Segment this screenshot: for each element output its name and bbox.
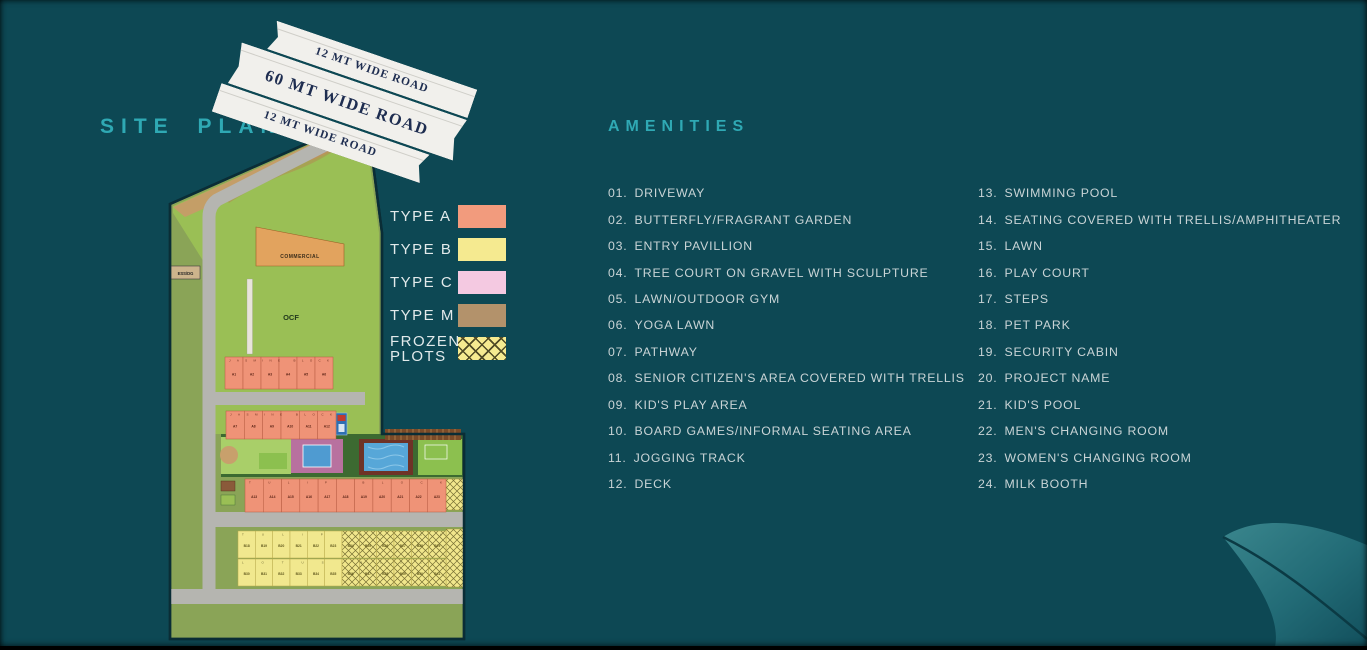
- amenity-label: DECK: [635, 477, 672, 491]
- amenity-item: 10.BOARD GAMES/INFORMAL SEATING AREA: [608, 418, 965, 444]
- amenity-number: 09.: [608, 398, 628, 412]
- amenity-number: 06.: [608, 318, 628, 332]
- amenity-label: SEATING COVERED WITH TRELLIS/AMPHITHEATE…: [1005, 213, 1342, 227]
- plot-label: A15: [288, 495, 294, 499]
- amenity-item: 22.MEN'S CHANGING ROOM: [978, 418, 1341, 444]
- amenity-number: 14.: [978, 213, 998, 227]
- amenity-label: PATHWAY: [635, 345, 698, 359]
- plot-label: A7: [233, 425, 237, 429]
- amenity-number: 18.: [978, 318, 998, 332]
- bottom-border: [0, 646, 1367, 650]
- pet-park-box: [221, 495, 235, 505]
- road-h1: [215, 392, 365, 405]
- plot-label: A23: [434, 495, 440, 499]
- amenity-item: 23.WOMEN'S CHANGING ROOM: [978, 444, 1341, 470]
- amenity-item: 24.MILK BOOTH: [978, 471, 1341, 497]
- amenity-item: 17.STEPS: [978, 286, 1341, 312]
- plot-label: A17: [324, 495, 330, 499]
- plot-label: A1: [232, 373, 236, 377]
- amenity-label: PLAY COURT: [1005, 266, 1090, 280]
- amenity-number: 10.: [608, 424, 628, 438]
- amenity-item: 18.PET PARK: [978, 312, 1341, 338]
- amenity-number: 23.: [978, 451, 998, 465]
- amenity-item: 09.KID'S PLAY AREA: [608, 392, 965, 418]
- amenity-item: 04.TREE COURT ON GRAVEL WITH SCULPTURE: [608, 259, 965, 285]
- amenity-number: 21.: [978, 398, 998, 412]
- plot-label: B30: [244, 572, 250, 576]
- plot-label: A5: [304, 373, 308, 377]
- plot-label: A10: [287, 425, 293, 429]
- amenity-label: BUTTERFLY/FRAGRANT GARDEN: [635, 213, 853, 227]
- amenity-label: WOMEN'S CHANGING ROOM: [1005, 451, 1192, 465]
- plot-label: B24: [348, 544, 354, 548]
- amenity-item: 14.SEATING COVERED WITH TRELLIS/AMPHITHE…: [978, 206, 1341, 232]
- amenity-item: 21.KID'S POOL: [978, 392, 1341, 418]
- amenity-label: KID'S POOL: [1005, 398, 1082, 412]
- plot-label: A9: [270, 425, 274, 429]
- amenity-number: 02.: [608, 213, 628, 227]
- plot-label: A11: [306, 425, 312, 429]
- plot-label: B37: [365, 572, 371, 576]
- amenity-label: ENTRY PAVILLION: [635, 239, 753, 253]
- c-block-name-strip: [247, 279, 253, 354]
- amenity-number: 01.: [608, 186, 628, 200]
- plot-label: B25: [365, 544, 371, 548]
- plot-label: A20: [379, 495, 385, 499]
- amenity-item: 12.DECK: [608, 471, 965, 497]
- amenity-item: 19.SECURITY CABIN: [978, 339, 1341, 365]
- plot-label: B36: [348, 572, 354, 576]
- tree-court-gravel: [220, 446, 238, 464]
- amenity-label: SENIOR CITIZEN'S AREA COVERED WITH TRELL…: [635, 371, 965, 385]
- amenity-number: 03.: [608, 239, 628, 253]
- amenity-item: 07.PATHWAY: [608, 339, 965, 365]
- kids-pool: [303, 445, 331, 467]
- plot-label: B26: [382, 544, 388, 548]
- amenity-label: DRIVEWAY: [635, 186, 706, 200]
- amenity-number: 24.: [978, 477, 998, 491]
- plot-label: A2: [250, 373, 254, 377]
- plot-label: B19: [261, 544, 267, 548]
- amenity-number: 17.: [978, 292, 998, 306]
- ess-dg-label: ESS/DG: [178, 271, 194, 276]
- amenity-label: PROJECT NAME: [1005, 371, 1111, 385]
- plot-label: B18: [244, 544, 250, 548]
- plot-label: B40: [417, 572, 423, 576]
- amenity-item: 03.ENTRY PAVILLION: [608, 233, 965, 259]
- amenity-number: 13.: [978, 186, 998, 200]
- amenity-number: 16.: [978, 266, 998, 280]
- amenities-heading: AMENITIES: [608, 118, 749, 136]
- amenity-label: YOGA LAWN: [635, 318, 716, 332]
- ocf-label: OCF: [283, 313, 299, 322]
- amenity-label: SWIMMING POOL: [1005, 186, 1119, 200]
- plot-label: B32: [278, 572, 284, 576]
- plot-label: B28: [417, 544, 423, 548]
- road-h3: [170, 589, 464, 604]
- plot-label: B34: [313, 572, 319, 576]
- plot-label: B20: [278, 544, 284, 548]
- amenity-label: SECURITY CABIN: [1005, 345, 1119, 359]
- amenity-number: 11.: [608, 451, 627, 465]
- amenity-item: 01.DRIVEWAY: [608, 180, 965, 206]
- amenity-number: 19.: [978, 345, 998, 359]
- plot-label: A4: [286, 373, 290, 377]
- plot-label: A13: [251, 495, 257, 499]
- amenity-number: 08.: [608, 371, 628, 385]
- amenity-number: 12.: [608, 477, 628, 491]
- amenity-item: 11.JOGGING TRACK: [608, 444, 965, 470]
- commercial-label: COMMERCIAL: [280, 254, 319, 260]
- amenity-number: 05.: [608, 292, 628, 306]
- plot-label: B29: [434, 544, 440, 548]
- amenity-item: 13.SWIMMING POOL: [978, 180, 1341, 206]
- amenity-label: MILK BOOTH: [1005, 477, 1089, 491]
- site-plan-page: SITE PLAN 12 MT WIDE ROAD 60 MT WIDE ROA…: [0, 0, 1367, 650]
- amenity-label: STEPS: [1005, 292, 1049, 306]
- amenity-number: 15.: [978, 239, 998, 253]
- amenity-item: 16.PLAY COURT: [978, 259, 1341, 285]
- plot-label: B38: [382, 572, 388, 576]
- amenity-label: PET PARK: [1005, 318, 1071, 332]
- security-cabin-box: [221, 481, 235, 491]
- amenity-label: BOARD GAMES/INFORMAL SEATING AREA: [635, 424, 912, 438]
- play-lawn: [418, 439, 462, 475]
- plot-label: A18: [342, 495, 348, 499]
- yoga-lawn: [259, 453, 287, 469]
- plot-label: A19: [361, 495, 367, 499]
- plot-label: A8: [251, 425, 255, 429]
- plot-label: B23: [330, 544, 336, 548]
- amenity-item: 05.LAWN/OUTDOOR GYM: [608, 286, 965, 312]
- amenity-item: 15.LAWN: [978, 233, 1341, 259]
- amenity-number: 07.: [608, 345, 628, 359]
- amenities-column-2: 13.SWIMMING POOL14.SEATING COVERED WITH …: [978, 180, 1341, 497]
- leaf-decoration: [1217, 505, 1367, 647]
- amenity-number: 04.: [608, 266, 628, 280]
- plot-label: A14: [269, 495, 275, 499]
- plot-label: B39: [400, 572, 406, 576]
- plot-label: B33: [296, 572, 302, 576]
- amenities-column-1: 01.DRIVEWAY02.BUTTERFLY/FRAGRANT GARDEN0…: [608, 180, 965, 497]
- plot-label: B27: [400, 544, 406, 548]
- amenity-number: 20.: [978, 371, 998, 385]
- plot-label: A6: [322, 373, 326, 377]
- amenity-label: TREE COURT ON GRAVEL WITH SCULPTURE: [635, 266, 929, 280]
- milk-booth: [336, 413, 347, 435]
- amenity-number: 22.: [978, 424, 998, 438]
- amenity-label: JOGGING TRACK: [634, 451, 746, 465]
- amenity-item: 20.PROJECT NAME: [978, 365, 1341, 391]
- plot-label: A21: [397, 495, 403, 499]
- amenity-label: LAWN: [1005, 239, 1043, 253]
- plot-label: B31: [261, 572, 267, 576]
- plot-label: B21: [296, 544, 302, 548]
- plot-label: B41: [434, 572, 440, 576]
- amenity-item: 06.YOGA LAWN: [608, 312, 965, 338]
- amenity-label: MEN'S CHANGING ROOM: [1005, 424, 1169, 438]
- plot-label: B22: [313, 544, 319, 548]
- plot-label: A12: [324, 425, 330, 429]
- amenity-item: 02.BUTTERFLY/FRAGRANT GARDEN: [608, 206, 965, 232]
- site-plan-map: COMMERCIAL OCF ESS/DG: [163, 127, 469, 645]
- amenity-label: LAWN/OUTDOOR GYM: [635, 292, 781, 306]
- plot-label: B35: [330, 572, 336, 576]
- road-h2: [215, 512, 464, 527]
- plot-label: A22: [416, 495, 422, 499]
- plot-label: A16: [306, 495, 312, 499]
- plot-label: A3: [268, 373, 272, 377]
- amenity-item: 08.SENIOR CITIZEN'S AREA COVERED WITH TR…: [608, 365, 965, 391]
- amenity-label: KID'S PLAY AREA: [635, 398, 748, 412]
